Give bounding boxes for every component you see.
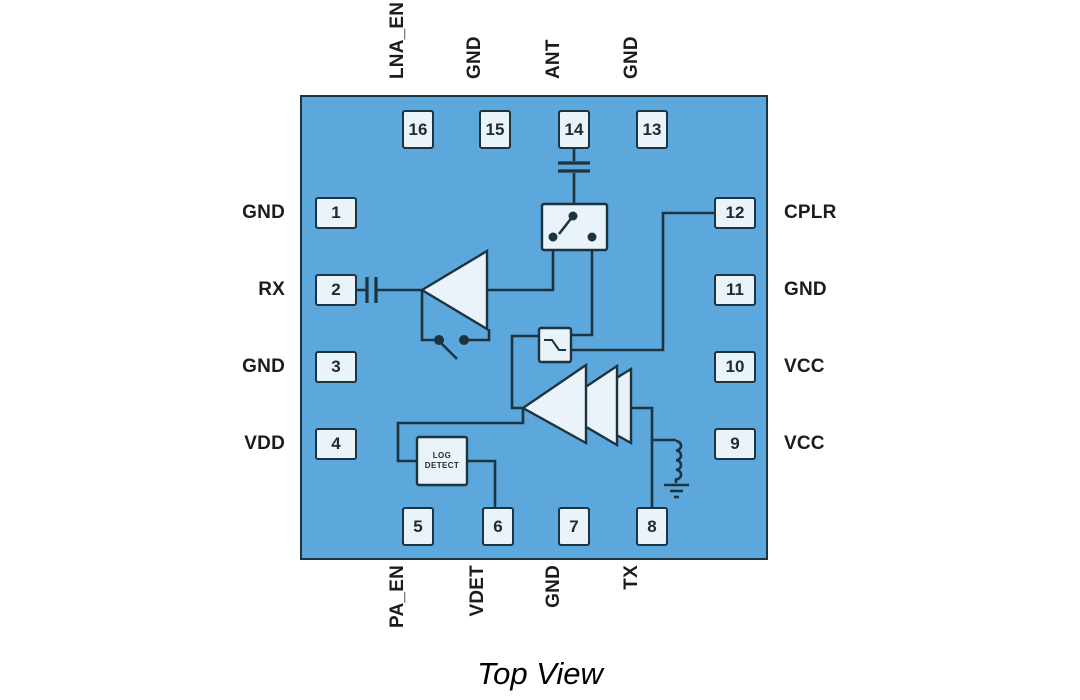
ground-symbol bbox=[664, 485, 689, 497]
pin-label-vdd: VDD bbox=[135, 433, 285, 455]
pin-7: 7 bbox=[558, 507, 590, 546]
pin-label-ant: ANT bbox=[544, 0, 564, 79]
pin-label-gnd-3: GND bbox=[135, 356, 285, 378]
pin-label-cplr: CPLR bbox=[784, 202, 934, 224]
pin-5: 5 bbox=[402, 507, 434, 546]
internal-circuit-schematic bbox=[0, 0, 1080, 700]
lna-amplifier bbox=[422, 251, 487, 329]
pin-14: 14 bbox=[558, 110, 590, 149]
log-detector-label-line2: DETECT bbox=[425, 461, 459, 471]
log-detector-label-line1: LOG bbox=[433, 451, 452, 461]
coupler-to-pa-wire bbox=[512, 336, 539, 408]
pin-label-lna-en: LNA_EN bbox=[388, 0, 408, 79]
pin-label-gnd-11: GND bbox=[784, 279, 934, 301]
pin-10: 10 bbox=[714, 351, 756, 383]
pin-label-rx: RX bbox=[135, 279, 285, 301]
pin-2: 2 bbox=[315, 274, 357, 306]
rf-frontend-pinout-diagram: 16 15 14 13 1 2 3 4 12 11 10 9 5 6 7 8 G… bbox=[0, 0, 1080, 700]
pin-label-gnd-13: GND bbox=[622, 0, 642, 79]
directional-coupler bbox=[539, 328, 571, 362]
pin-1: 1 bbox=[315, 197, 357, 229]
log-detect-to-vdet-wire bbox=[467, 461, 495, 507]
pin-label-gnd-1: GND bbox=[135, 202, 285, 224]
rx-dc-block-capacitor bbox=[357, 277, 422, 303]
pa-amplifier-3-stage bbox=[523, 365, 631, 445]
switch-to-lna-wire bbox=[487, 250, 553, 290]
pin-label-gnd-15: GND bbox=[465, 0, 485, 79]
pin-13: 13 bbox=[636, 110, 668, 149]
antenna-switch bbox=[542, 204, 607, 250]
pin-6: 6 bbox=[482, 507, 514, 546]
ant-dc-block-capacitor bbox=[558, 148, 590, 204]
pin-15: 15 bbox=[479, 110, 511, 149]
pin-3: 3 bbox=[315, 351, 357, 383]
switch-to-coupler-wire bbox=[571, 250, 592, 335]
pin-4: 4 bbox=[315, 428, 357, 460]
pin-11: 11 bbox=[714, 274, 756, 306]
log-detector-label: LOG DETECT bbox=[417, 437, 467, 485]
pin-12: 12 bbox=[714, 197, 756, 229]
figure-caption: Top View bbox=[340, 656, 740, 692]
pin-label-vcc-9: VCC bbox=[784, 433, 934, 455]
pin-label-vcc-10: VCC bbox=[784, 356, 934, 378]
pin-9: 9 bbox=[714, 428, 756, 460]
choke-inductor bbox=[652, 440, 681, 483]
pin-8: 8 bbox=[636, 507, 668, 546]
pin-16: 16 bbox=[402, 110, 434, 149]
tx-to-pa-wire bbox=[631, 408, 652, 507]
